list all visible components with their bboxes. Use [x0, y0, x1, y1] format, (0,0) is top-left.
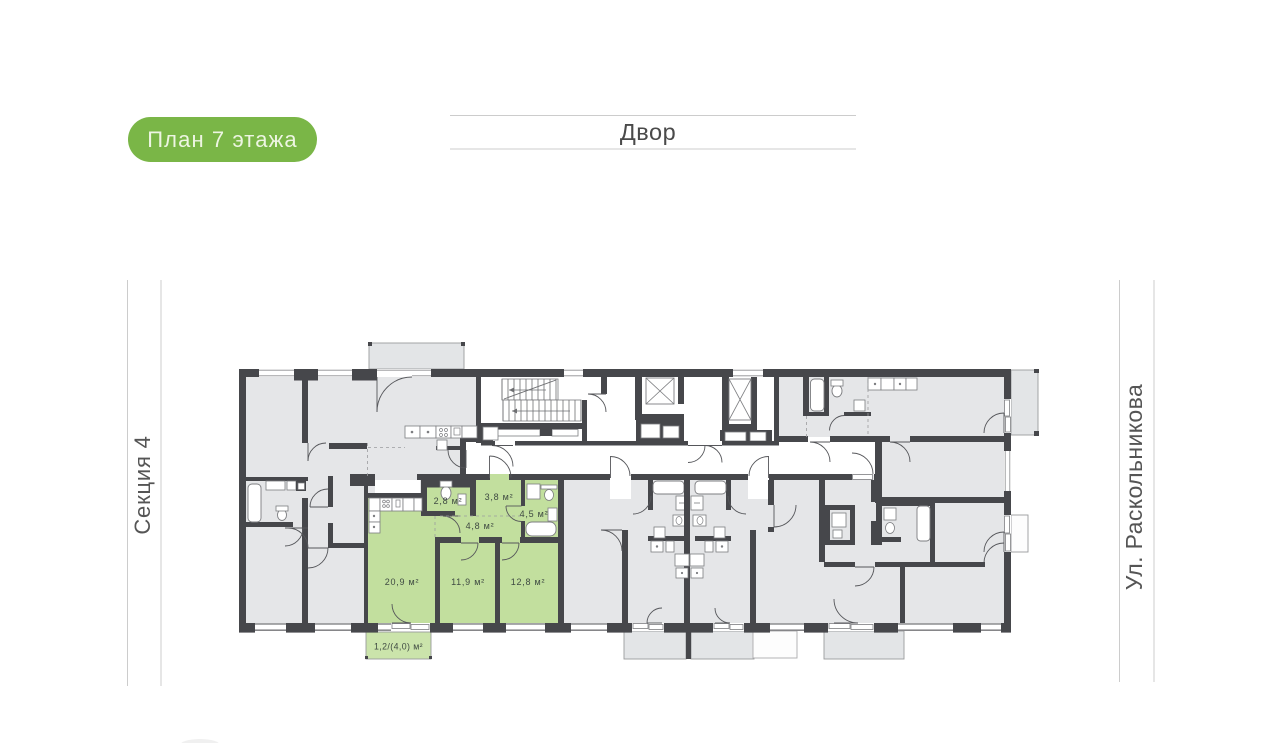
svg-text:4,5 м²: 4,5 м²: [520, 509, 549, 519]
svg-text:Секция 4: Секция 4: [130, 435, 155, 534]
svg-text:1,2/(4,0) м²: 1,2/(4,0) м²: [374, 642, 423, 652]
svg-text:Двор: Двор: [620, 119, 676, 145]
svg-text:Ул. Раскольникова: Ул. Раскольникова: [1121, 384, 1147, 590]
svg-text:4,8 м²: 4,8 м²: [466, 521, 495, 531]
svg-text:План 7 этажа: План 7 этажа: [147, 127, 297, 152]
svg-text:20,9 м²: 20,9 м²: [385, 577, 419, 587]
svg-text:2,8 м²: 2,8 м²: [434, 496, 463, 506]
svg-text:11,9 м²: 11,9 м²: [451, 577, 485, 587]
svg-text:12,8 м²: 12,8 м²: [511, 577, 545, 587]
svg-text:3,8 м²: 3,8 м²: [485, 492, 514, 502]
